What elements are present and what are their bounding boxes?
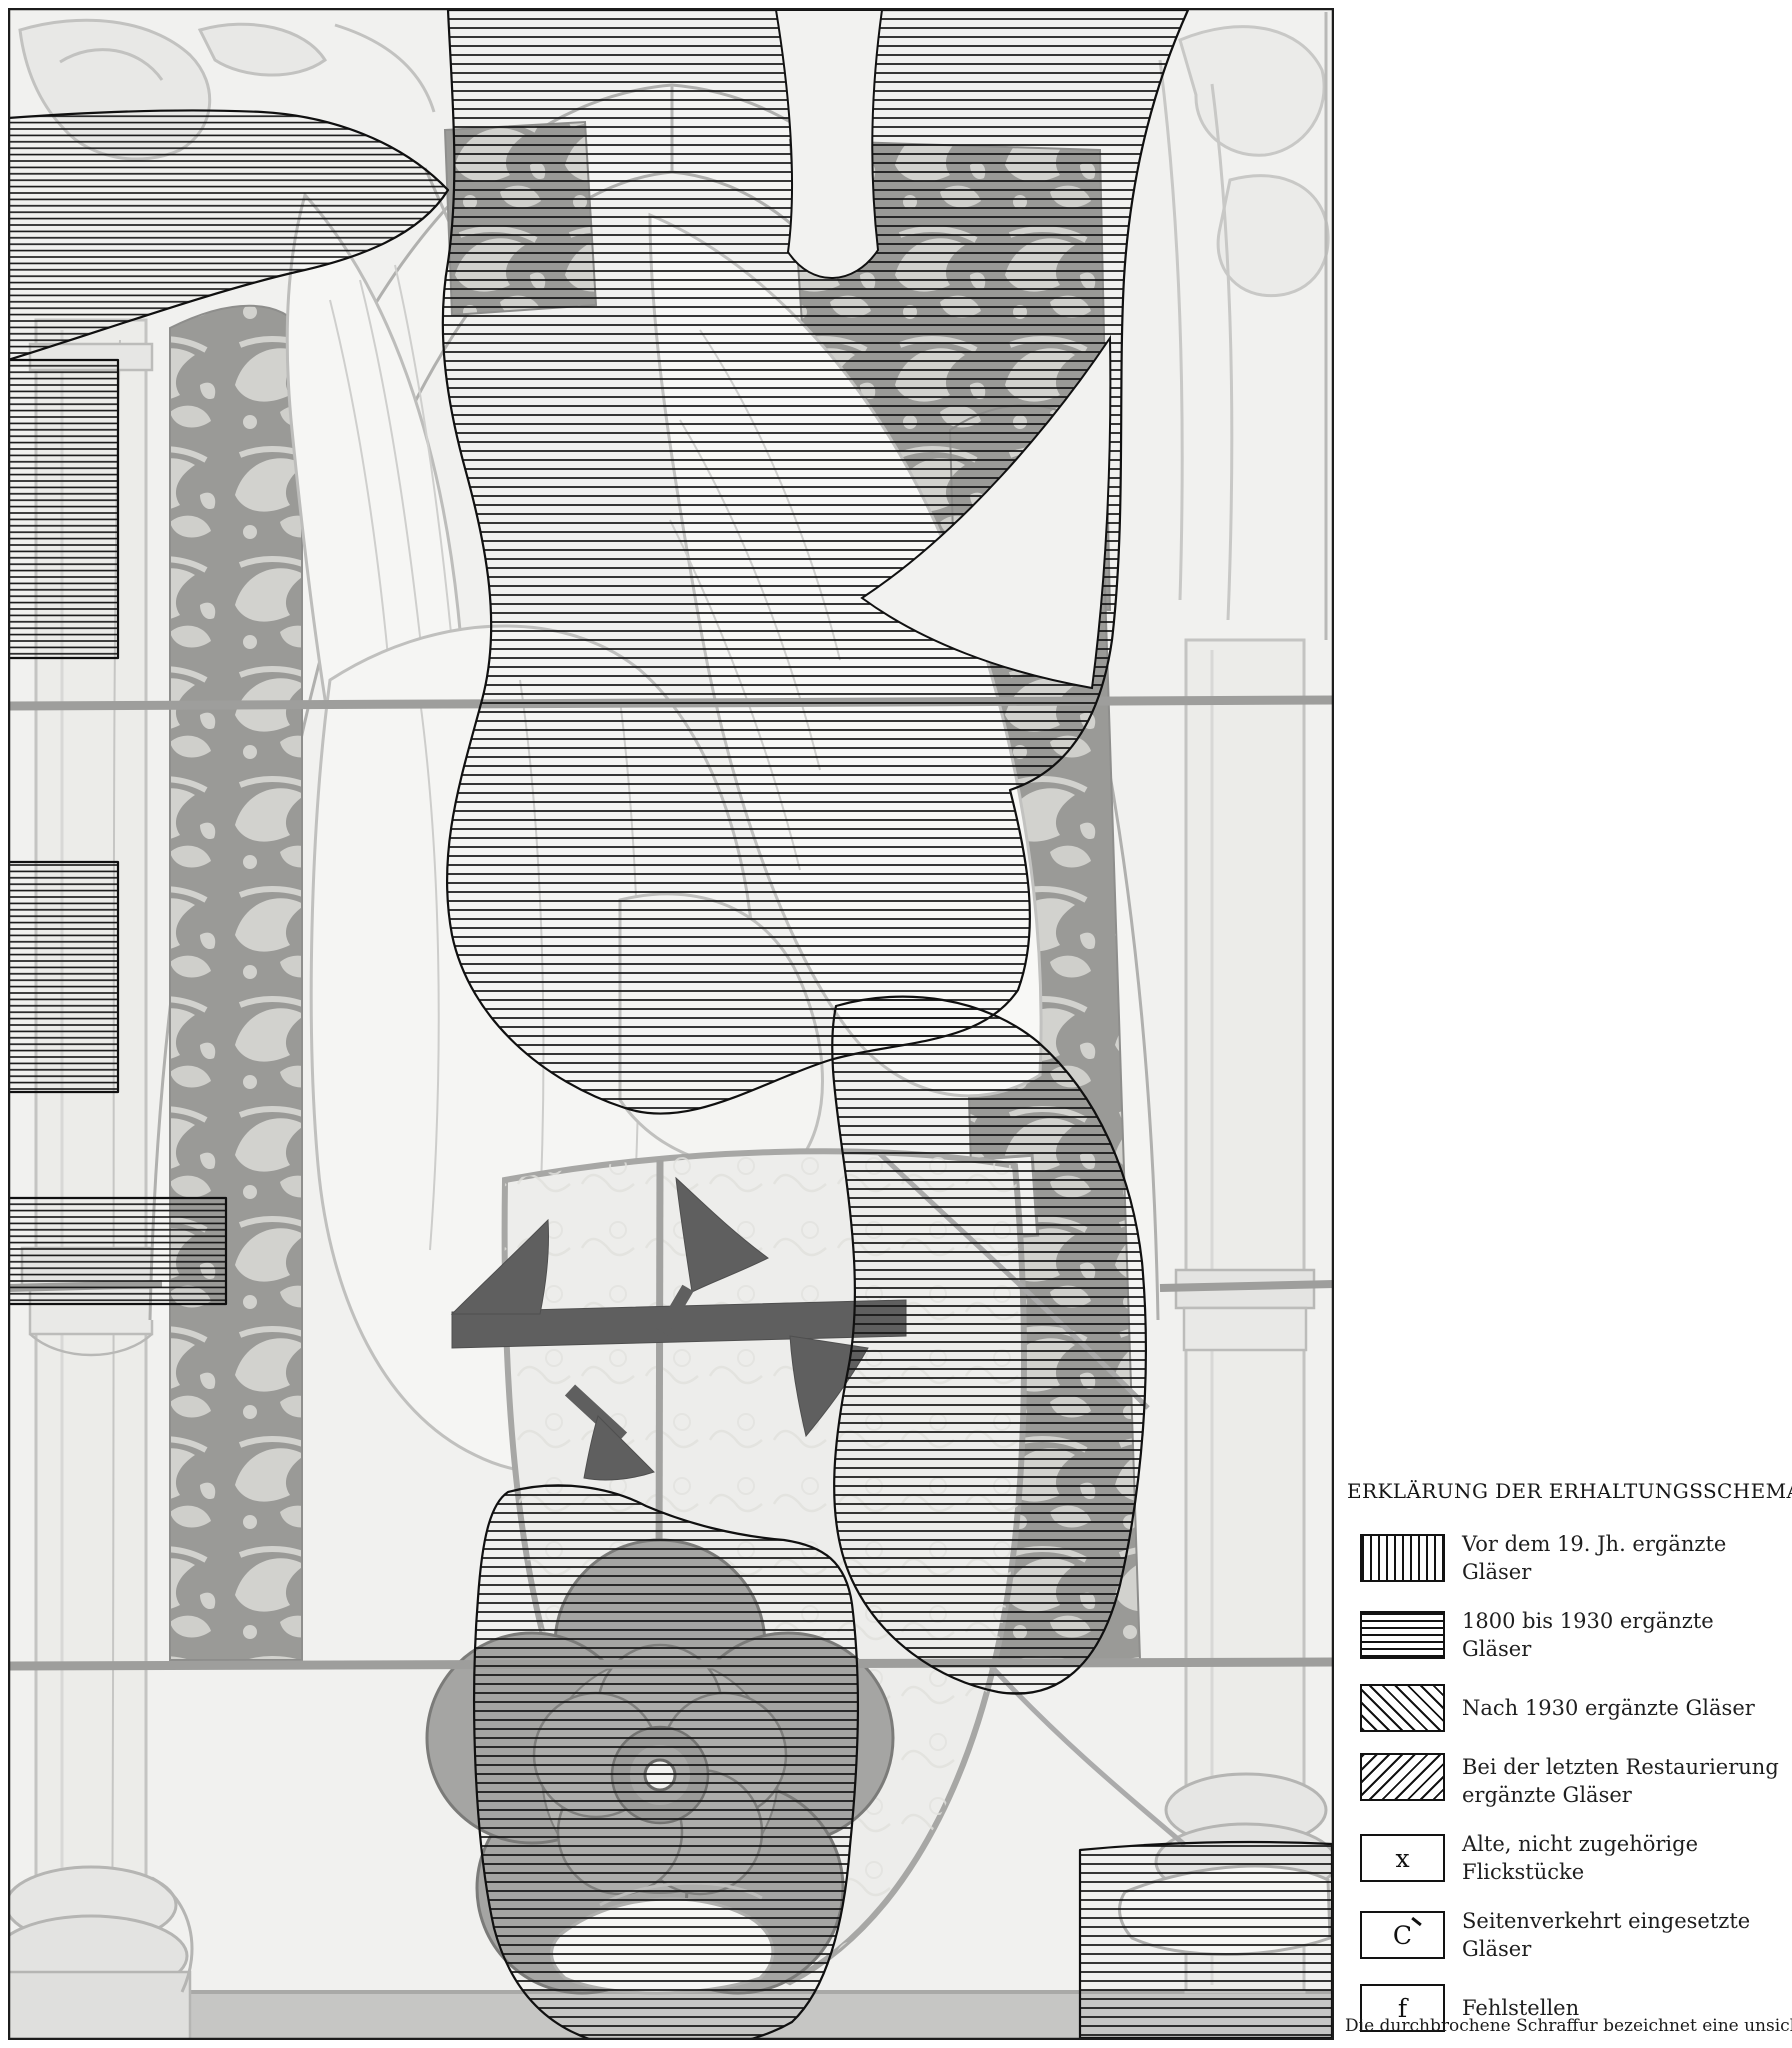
stained-glass-conservation-photo (8, 8, 1334, 2040)
legend-item-pre-19th-century: Vor dem 19. Jh. ergänzte Gläser (1360, 1530, 1792, 1586)
legend-item-reversed-glass: C Seitenverkehrt eingesetzte Gläser (1360, 1907, 1792, 1963)
backslash-hatch-swatch (1360, 1684, 1445, 1732)
legend-item-1800-1930: 1800 bis 1930 ergänzte Gläser (1360, 1607, 1792, 1663)
horizontal-hatch-swatch (1360, 1611, 1445, 1659)
plate-page: ERKLÄRUNG DER ERHALTUNGSSCHEMATA Vor dem… (0, 0, 1792, 2048)
symbol-x: x (1395, 1846, 1409, 1871)
slash-hatch-swatch (1360, 1753, 1445, 1801)
legend-title: ERKLÄRUNG DER ERHALTUNGSSCHEMATA (1347, 1479, 1792, 1503)
hatch-overlay-bottom-right (1080, 1842, 1332, 2038)
legend-item-label: Alte, nicht zugehörige Flickstücke (1462, 1830, 1782, 1886)
legend-item-label: Bei der letzten Restaurierung ergänzte G… (1462, 1753, 1782, 1809)
legend-item-label: Nach 1930 ergänzte Gläser (1462, 1694, 1755, 1722)
symbol-c-box: C (1360, 1911, 1445, 1959)
conservation-legend: ERKLÄRUNG DER ERHALTUNGSSCHEMATA Vor dem… (1345, 1479, 1792, 2048)
symbol-c-tick (1411, 1916, 1422, 1925)
vertical-hatch-swatch (1360, 1534, 1445, 1582)
legend-item-label: Seitenverkehrt eingesetzte Gläser (1462, 1907, 1782, 1963)
hatch-overlay-left-c (8, 1198, 226, 1304)
hatch-overlay-left-b (8, 862, 118, 1092)
legend-item-label: 1800 bis 1930 ergänzte Gläser (1462, 1607, 1782, 1663)
hatch-overlay-left-a (8, 360, 118, 658)
legend-item-foreign-patches: x Alte, nicht zugehörige Flickstücke (1360, 1830, 1792, 1886)
stained-glass-photo-svg (8, 8, 1334, 2040)
legend-item-after-1930: Nach 1930 ergänzte Gläser (1360, 1684, 1792, 1732)
legend-note: Die durchbrochene Schraffur bezeichnet e… (1345, 2016, 1792, 2036)
hatch-overlay-rose (474, 1485, 858, 2040)
legend-item-last-restoration: Bei der letzten Restaurierung ergänzte G… (1360, 1753, 1792, 1809)
symbol-c-reversed: C (1393, 1923, 1412, 1948)
legend-item-label: Vor dem 19. Jh. ergänzte Gläser (1462, 1530, 1782, 1586)
symbol-x-box: x (1360, 1834, 1445, 1882)
